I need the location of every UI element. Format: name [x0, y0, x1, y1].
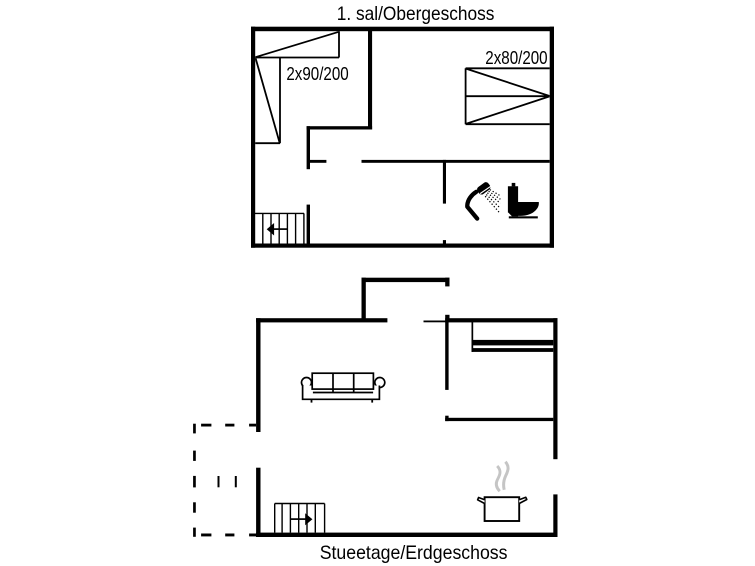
- svg-text:Stueetage/Erdgeschoss: Stueetage/Erdgeschoss: [320, 542, 508, 564]
- svg-text:2x90/200: 2x90/200: [286, 64, 348, 84]
- svg-text:1. sal/Obergeschoss: 1. sal/Obergeschoss: [337, 3, 495, 25]
- svg-text:2x80/200: 2x80/200: [485, 48, 547, 68]
